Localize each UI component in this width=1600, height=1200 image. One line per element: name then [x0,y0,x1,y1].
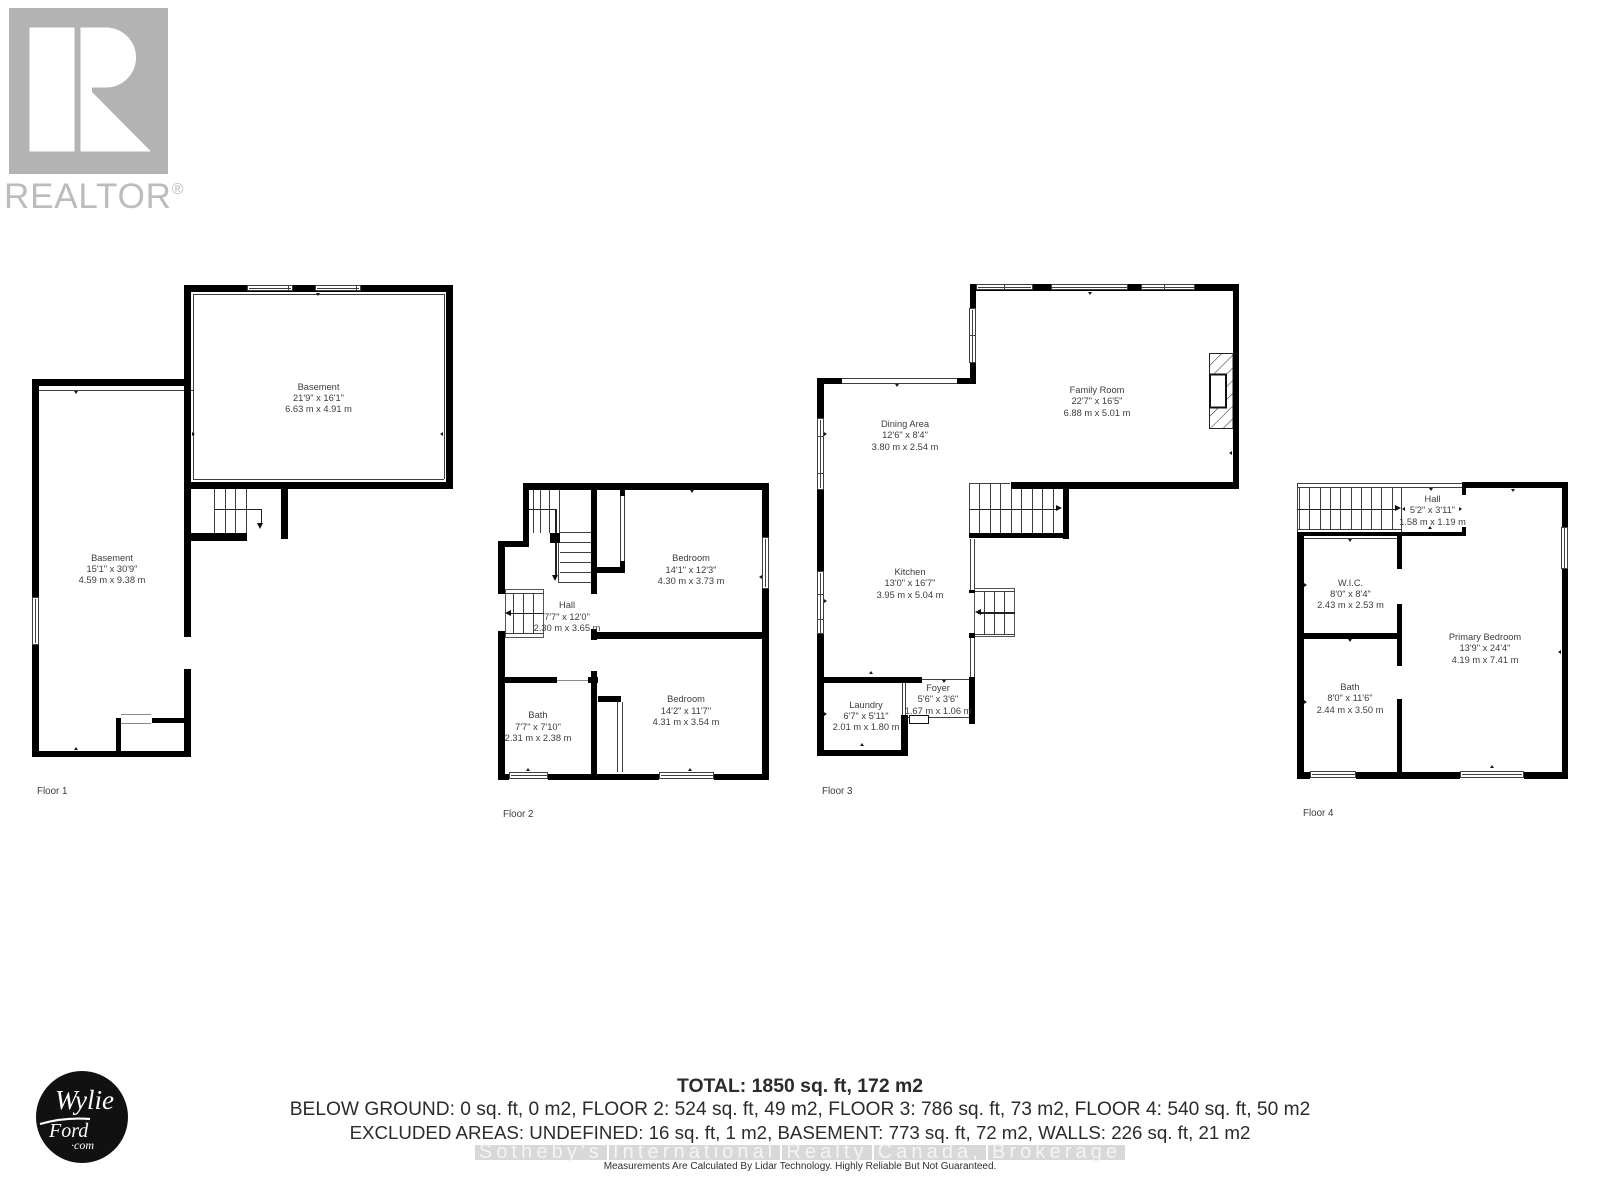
svg-text:·com: ·com [71,1138,94,1152]
svg-text:Wylie: Wylie [55,1085,114,1115]
